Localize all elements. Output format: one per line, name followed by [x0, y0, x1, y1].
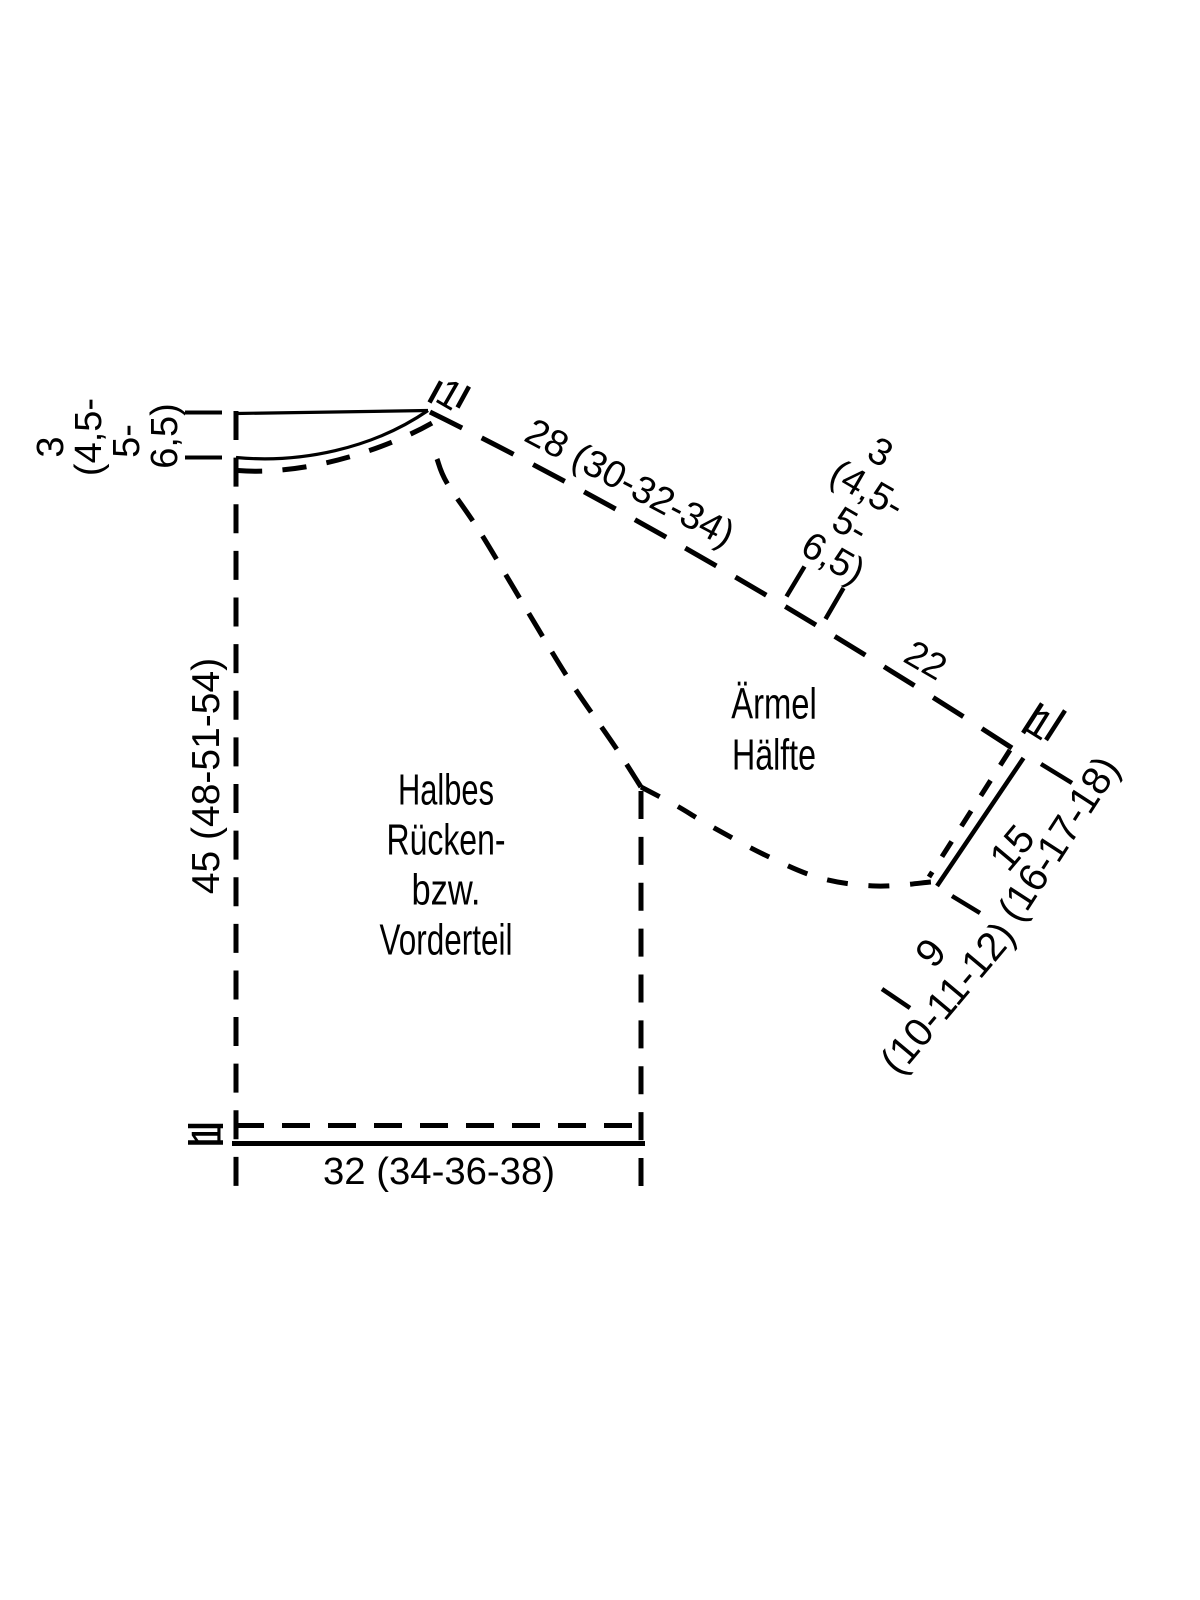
svg-text:Hälfte: Hälfte: [732, 731, 816, 780]
svg-text:6,5): 6,5): [144, 403, 186, 468]
svg-text:5-: 5-: [106, 424, 148, 458]
svg-text:45 (48-51-54): 45 (48-51-54): [185, 658, 228, 894]
svg-text:1: 1: [183, 1123, 230, 1146]
svg-text:(4,5-: (4,5-: [68, 398, 110, 476]
svg-text:Ärmel: Ärmel: [731, 680, 817, 729]
svg-text:32 (34-36-38): 32 (34-36-38): [323, 1151, 555, 1193]
svg-text:bzw.: bzw.: [412, 866, 481, 915]
svg-text:Vorderteil: Vorderteil: [380, 916, 513, 965]
svg-text:3: 3: [30, 436, 72, 457]
svg-text:Halbes: Halbes: [398, 766, 494, 815]
svg-text:Rücken-: Rücken-: [387, 816, 506, 865]
